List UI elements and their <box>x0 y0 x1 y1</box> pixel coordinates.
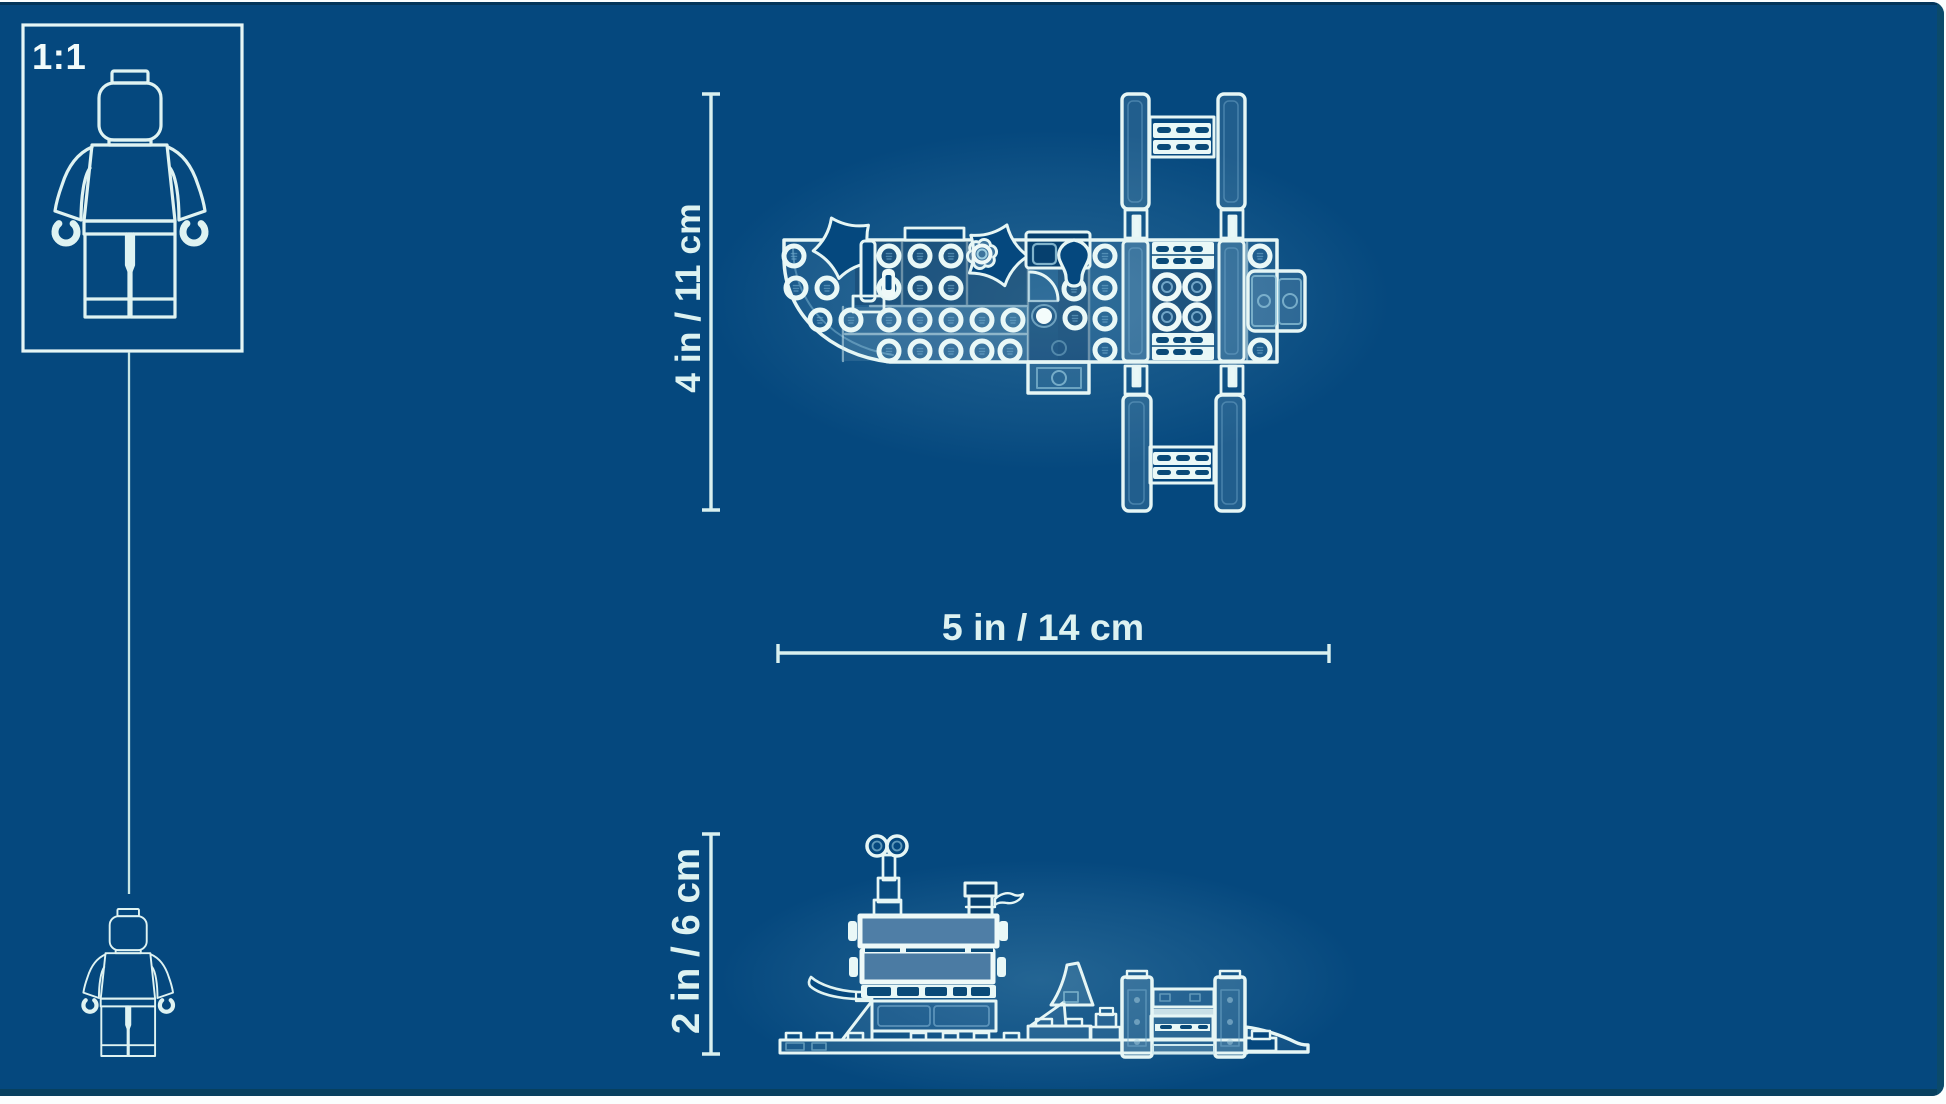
svg-text:5 in / 14 cm: 5 in / 14 cm <box>942 606 1144 648</box>
svg-text:2 in / 6 cm: 2 in / 6 cm <box>665 848 708 1034</box>
svg-text:1:1: 1:1 <box>32 36 86 77</box>
svg-text:4 in / 11 cm: 4 in / 11 cm <box>668 203 708 392</box>
